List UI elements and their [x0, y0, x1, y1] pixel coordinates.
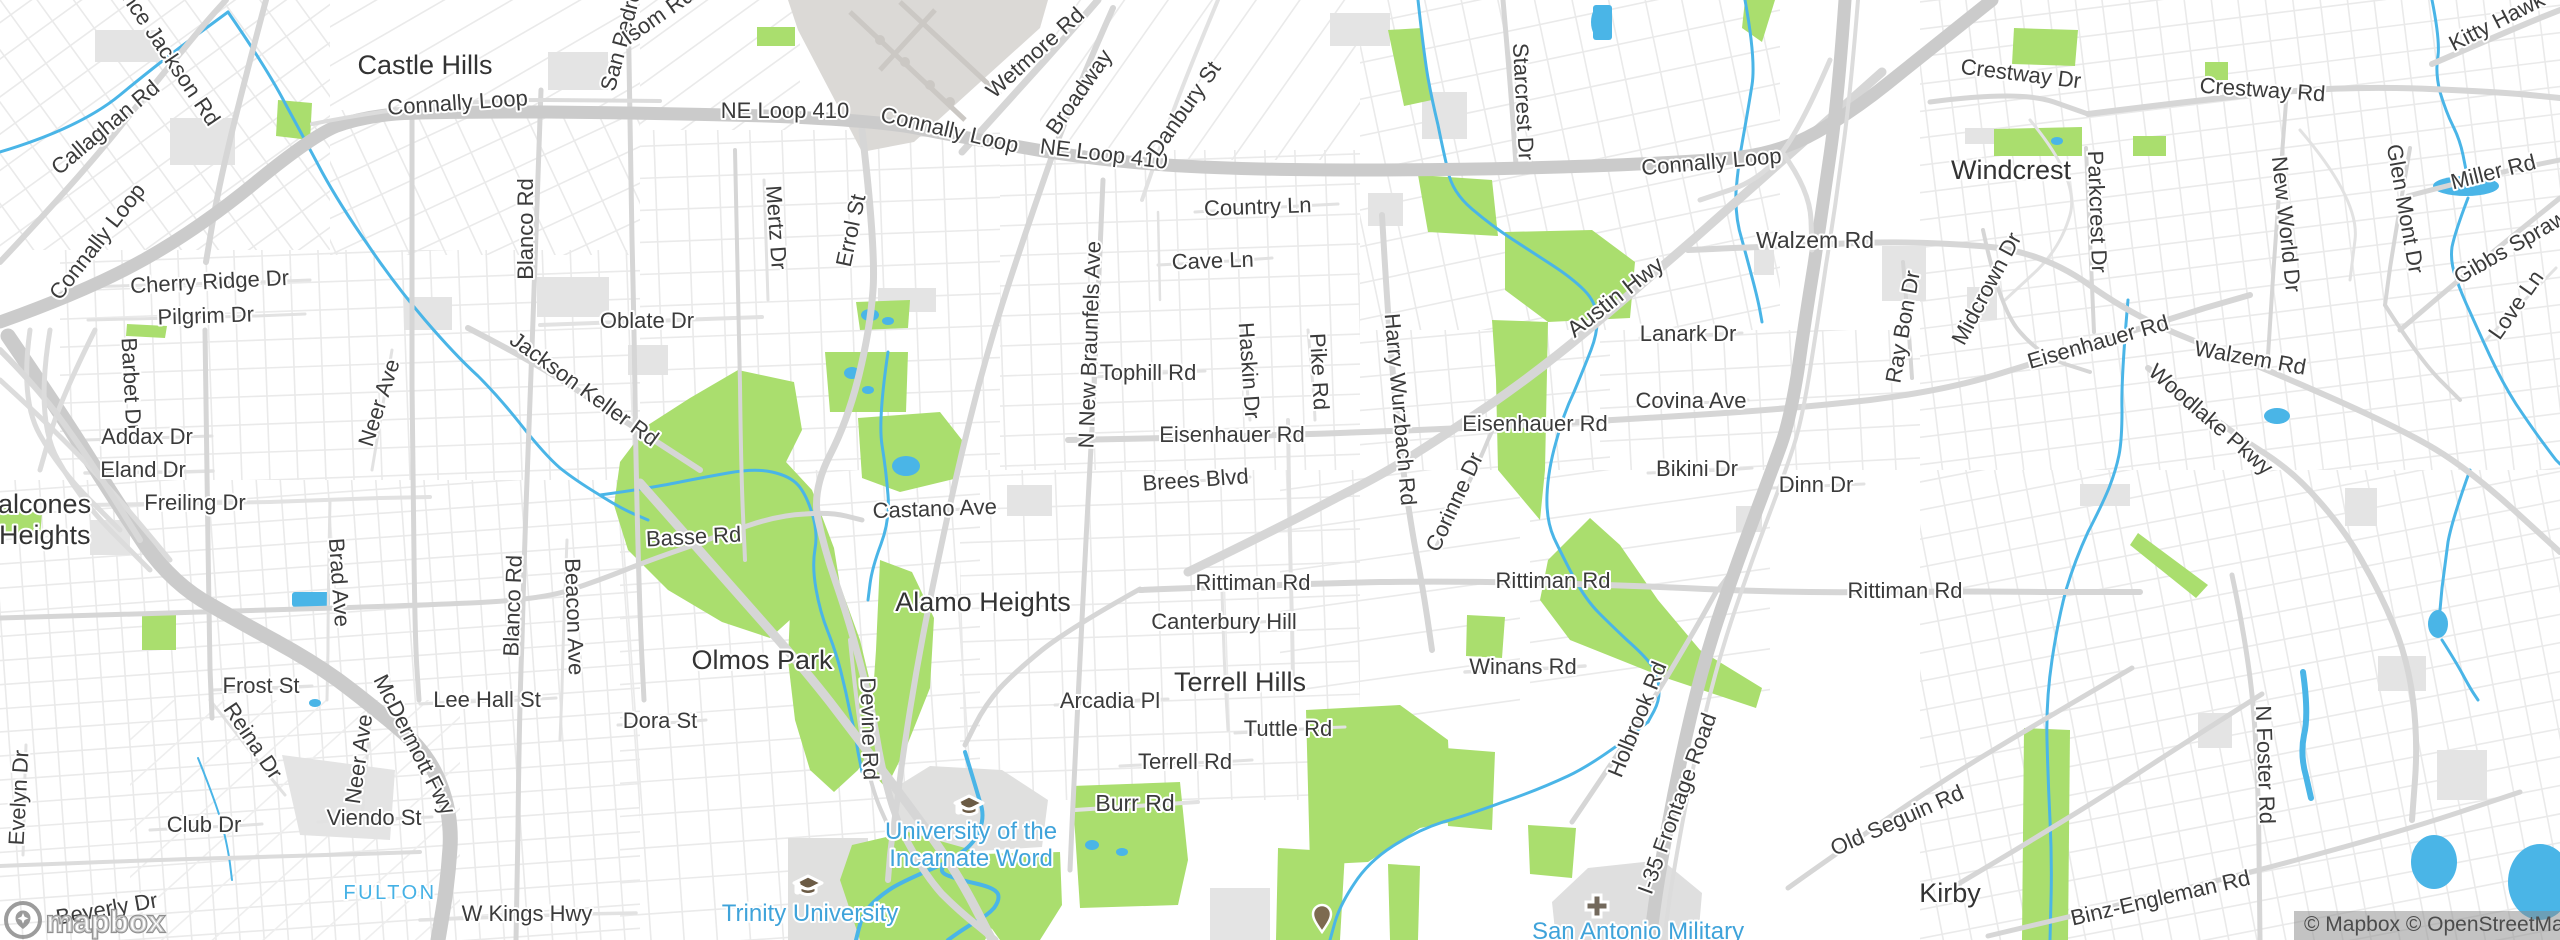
svg-text:© Mapbox © OpenStreetMap: © Mapbox © OpenStreetMap [2304, 913, 2560, 936]
svg-text:Balcones: Balcones [0, 489, 91, 519]
svg-text:Barbet Dr: Barbet Dr [117, 337, 147, 432]
svg-text:Cave Ln: Cave Ln [1171, 247, 1254, 275]
svg-text:Incarnate Word: Incarnate Word [889, 845, 1053, 872]
svg-text:Castano Ave: Castano Ave [872, 494, 997, 523]
svg-text:Tuttle Rd: Tuttle Rd [1244, 716, 1332, 741]
svg-text:Lanark Dr: Lanark Dr [1640, 321, 1737, 346]
svg-text:Evelyn Dr: Evelyn Dr [4, 749, 34, 846]
svg-text:Covina Ave: Covina Ave [1636, 388, 1747, 413]
svg-text:Heights: Heights [0, 520, 91, 550]
svg-text:Tophill Rd: Tophill Rd [1100, 360, 1197, 385]
svg-text:Rittiman Rd: Rittiman Rd [1196, 570, 1311, 595]
svg-text:Alamo Heights: Alamo Heights [895, 587, 1071, 617]
svg-text:Rittiman Rd: Rittiman Rd [1496, 568, 1611, 593]
svg-text:Pike Rd: Pike Rd [1305, 332, 1334, 410]
svg-text:Eisenhauer Rd: Eisenhauer Rd [1159, 422, 1305, 447]
svg-text:Eisenhauer Rd: Eisenhauer Rd [1462, 411, 1608, 436]
svg-text:Bikini Dr: Bikini Dr [1656, 456, 1738, 481]
svg-text:Dora St: Dora St [623, 708, 698, 733]
svg-text:Viendo St: Viendo St [326, 805, 421, 830]
svg-text:W Kings Hwy: W Kings Hwy [462, 901, 593, 926]
svg-text:Pilgrim Dr: Pilgrim Dr [157, 301, 254, 329]
svg-text:Canterbury Hill: Canterbury Hill [1151, 609, 1297, 634]
svg-text:Blanco Rd: Blanco Rd [498, 555, 527, 657]
svg-text:Kirby: Kirby [1919, 878, 1981, 908]
svg-text:Windcrest: Windcrest [1951, 155, 2072, 185]
svg-text:Trinity University: Trinity University [722, 900, 898, 927]
svg-text:Walzem Rd: Walzem Rd [1756, 227, 1874, 253]
svg-text:University of the: University of the [885, 818, 1057, 845]
svg-text:Frost St: Frost St [222, 673, 299, 698]
svg-text:Basse Rd: Basse Rd [645, 522, 742, 552]
svg-text:Arcadia Pl: Arcadia Pl [1060, 688, 1160, 713]
svg-text:Winans Rd: Winans Rd [1469, 654, 1577, 679]
svg-text:FULTON: FULTON [343, 882, 436, 904]
svg-text:mapbox: mapbox [46, 904, 166, 939]
svg-text:Freiling Dr: Freiling Dr [144, 490, 245, 515]
svg-text:Addax Dr: Addax Dr [101, 424, 193, 449]
svg-text:Country Ln: Country Ln [1204, 192, 1312, 221]
svg-text:Parkcrest Dr: Parkcrest Dr [2083, 150, 2112, 273]
svg-text:Olmos Park: Olmos Park [691, 645, 833, 675]
svg-text:NE Loop 410: NE Loop 410 [721, 98, 849, 123]
svg-text:San Antonio Military: San Antonio Military [1532, 918, 1744, 940]
svg-text:Devine Rd: Devine Rd [855, 677, 884, 781]
svg-text:Oblate Dr: Oblate Dr [600, 308, 694, 333]
svg-text:N Foster Rd: N Foster Rd [2251, 705, 2280, 824]
svg-text:Burr Rd: Burr Rd [1095, 790, 1174, 816]
svg-text:Blanco Rd: Blanco Rd [513, 178, 538, 280]
svg-text:Terrell Rd: Terrell Rd [1138, 749, 1232, 774]
svg-text:Eland Dr: Eland Dr [100, 457, 186, 482]
svg-text:Club Dr: Club Dr [167, 812, 242, 837]
svg-text:Beacon Ave: Beacon Ave [560, 558, 589, 676]
svg-text:Lee Hall St: Lee Hall St [433, 687, 541, 712]
svg-text:Dinn Dr: Dinn Dr [1779, 472, 1854, 497]
svg-text:Rittiman Rd: Rittiman Rd [1848, 578, 1963, 603]
svg-text:Castle Hills: Castle Hills [357, 50, 492, 80]
svg-text:Terrell Hills: Terrell Hills [1174, 667, 1306, 697]
